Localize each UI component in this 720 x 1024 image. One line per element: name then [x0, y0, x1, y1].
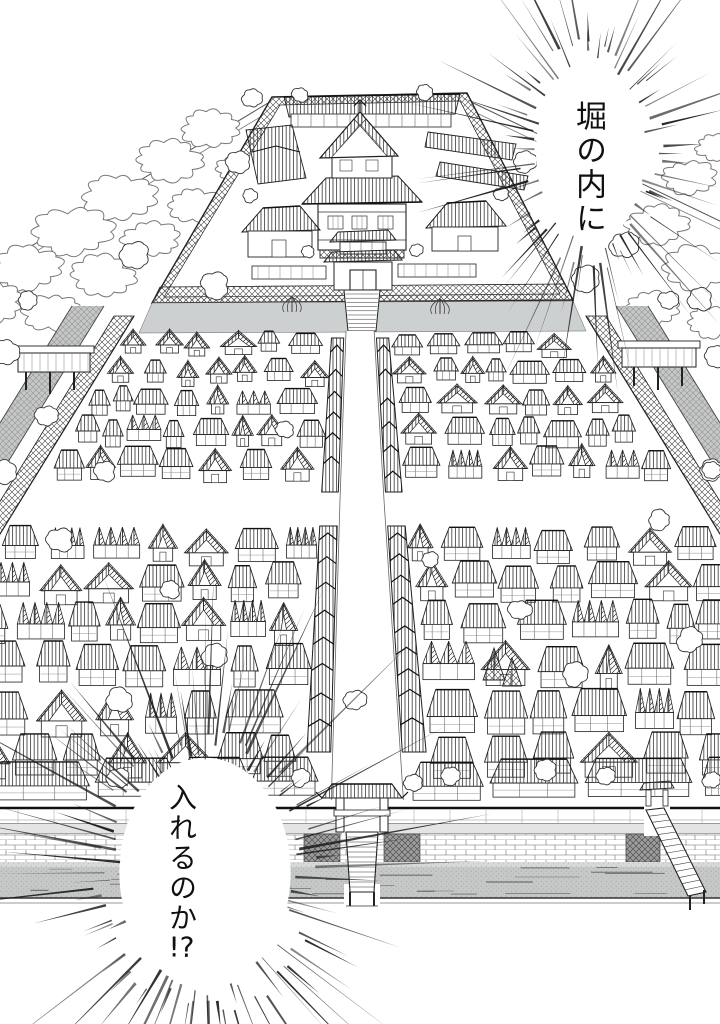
house	[461, 356, 485, 382]
house	[493, 447, 528, 481]
row-house	[493, 527, 531, 558]
house	[174, 391, 198, 416]
house	[586, 419, 609, 446]
house	[220, 331, 257, 355]
house	[76, 644, 119, 685]
house	[625, 643, 674, 684]
house	[530, 691, 567, 734]
house	[645, 561, 693, 601]
house	[452, 561, 496, 597]
row-house	[423, 641, 475, 680]
house	[54, 450, 84, 480]
house	[628, 528, 671, 565]
house	[103, 420, 124, 447]
house	[677, 692, 715, 735]
house	[584, 527, 619, 560]
house	[544, 421, 582, 448]
house	[301, 361, 330, 387]
balloon-text: 入れるのか	[165, 783, 198, 933]
row-house	[0, 562, 30, 596]
house	[0, 692, 28, 735]
balloon-bottom-left: 入れるのか!?	[167, 783, 195, 961]
house	[232, 415, 254, 446]
house	[228, 566, 256, 602]
house	[297, 420, 325, 447]
house	[264, 358, 293, 380]
house	[235, 529, 278, 562]
house	[258, 331, 280, 351]
castle-town-houses	[0, 329, 720, 800]
house	[427, 690, 478, 733]
house	[510, 361, 549, 383]
house	[626, 599, 659, 638]
row-house	[606, 450, 639, 478]
house	[269, 602, 298, 645]
house	[84, 563, 134, 603]
house	[437, 384, 478, 413]
house	[240, 450, 271, 480]
house	[569, 444, 595, 478]
house	[403, 447, 440, 477]
house	[530, 446, 564, 476]
house	[184, 332, 210, 356]
house	[595, 645, 622, 690]
house	[137, 604, 180, 643]
house	[421, 600, 452, 639]
house	[642, 451, 671, 481]
house	[572, 689, 627, 732]
house	[144, 360, 166, 382]
house	[181, 597, 225, 640]
house	[553, 360, 586, 382]
house	[534, 531, 572, 564]
house	[461, 604, 506, 643]
house	[612, 415, 635, 442]
house	[490, 418, 516, 445]
balloon-top-right: 堀の内に	[572, 100, 603, 236]
house	[503, 332, 534, 352]
house	[184, 529, 228, 566]
row-house	[231, 600, 266, 637]
house	[522, 390, 549, 415]
manga-page: 堀の内に 入れるのか!?	[0, 0, 720, 1024]
house	[434, 358, 459, 380]
house	[207, 385, 229, 414]
house	[117, 446, 158, 476]
house	[36, 690, 87, 737]
house	[465, 333, 503, 353]
house	[113, 386, 133, 411]
row-house	[636, 688, 674, 728]
house	[0, 604, 8, 643]
house	[231, 646, 258, 687]
house	[89, 390, 110, 415]
house	[490, 759, 578, 797]
row-house	[127, 415, 161, 440]
row-house	[572, 600, 618, 637]
house	[537, 333, 571, 357]
balloon-text: 堀の内に	[570, 100, 606, 236]
house	[485, 385, 522, 414]
house	[206, 357, 232, 383]
house	[185, 691, 217, 734]
house	[193, 419, 228, 446]
house	[37, 641, 70, 682]
house	[399, 387, 431, 412]
house	[266, 562, 302, 598]
house	[106, 597, 136, 640]
house	[591, 356, 617, 382]
house	[232, 355, 257, 381]
house	[587, 384, 623, 413]
house	[69, 602, 101, 641]
house	[498, 566, 539, 602]
house	[0, 641, 25, 682]
house	[107, 356, 134, 382]
house	[163, 421, 184, 448]
house	[427, 334, 460, 354]
house	[393, 357, 427, 383]
castle-town-illustration	[0, 0, 720, 1024]
house	[76, 415, 100, 442]
house	[486, 359, 506, 381]
house	[134, 389, 169, 414]
row-house	[449, 450, 482, 478]
row-house	[94, 527, 140, 558]
row-house	[287, 527, 317, 558]
house	[401, 413, 437, 444]
house	[40, 565, 82, 605]
house	[159, 449, 193, 479]
balloon-text-exclamation: !?	[165, 933, 198, 961]
house	[441, 527, 483, 560]
house	[281, 447, 315, 481]
house	[675, 527, 716, 560]
house	[2, 526, 38, 559]
house	[518, 417, 540, 444]
house	[553, 386, 582, 415]
house	[277, 389, 317, 414]
house	[392, 335, 423, 355]
house	[589, 562, 638, 598]
house	[199, 449, 232, 483]
house	[289, 333, 323, 353]
house	[694, 565, 720, 601]
row-house	[237, 391, 271, 415]
house	[485, 691, 528, 734]
row-house	[17, 602, 64, 639]
house	[123, 646, 166, 687]
house	[445, 417, 484, 444]
house	[550, 566, 583, 602]
house	[177, 360, 199, 386]
house	[148, 524, 178, 561]
